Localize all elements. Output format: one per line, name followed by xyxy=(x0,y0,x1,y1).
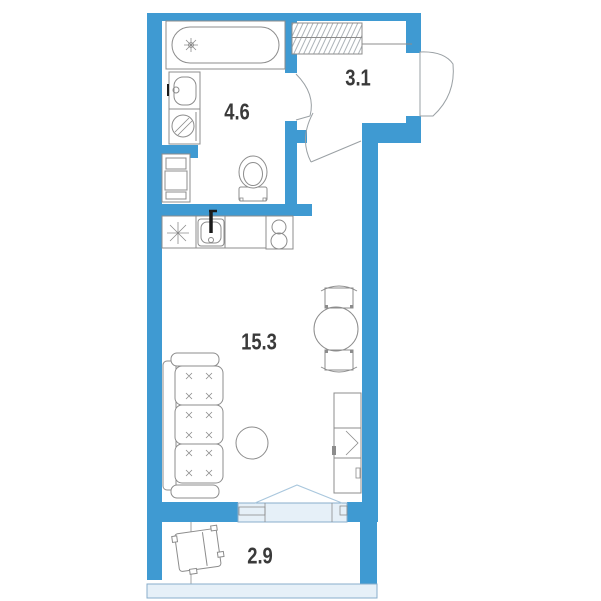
room-label-hallway: 3.1 xyxy=(345,65,371,92)
wall-bath-bottom xyxy=(147,204,312,216)
bathroom-door-swing xyxy=(296,74,311,120)
room-label-living-room: 15.3 xyxy=(241,329,277,356)
wall-left xyxy=(147,13,162,580)
kitchen xyxy=(162,211,293,249)
pouf xyxy=(236,427,268,459)
fridge-spot-symbol xyxy=(167,222,189,244)
wall-bath-right-lower xyxy=(285,121,297,216)
wall-top xyxy=(147,13,421,21)
balcony-glazing xyxy=(147,584,377,598)
living-room-furniture xyxy=(163,286,361,498)
balcony-door-open-lines xyxy=(255,485,342,503)
balcony-armchair xyxy=(171,525,226,576)
wall-bottom-left xyxy=(147,502,238,522)
entrance-door-swing xyxy=(420,52,453,116)
bathroom-sink xyxy=(168,72,200,109)
wall-balcony-right xyxy=(360,522,377,584)
balcony-door xyxy=(238,485,347,522)
stove xyxy=(266,216,293,249)
bathtub xyxy=(166,21,285,69)
round-table xyxy=(314,307,358,351)
bathtub-drain xyxy=(184,38,198,52)
wall-bottom-right-chunk xyxy=(347,502,378,522)
bathroom-cabinet xyxy=(162,154,190,202)
room-label-balcony: 2.9 xyxy=(247,543,273,570)
sofa xyxy=(163,353,223,498)
toilet xyxy=(239,156,267,201)
wall-living-right xyxy=(362,123,378,505)
wardrobe xyxy=(332,393,361,493)
floor-plan-svg xyxy=(0,0,601,601)
chair-bottom xyxy=(321,350,357,372)
wall-right-top xyxy=(406,13,421,53)
chair-top xyxy=(321,286,357,308)
washing-machine xyxy=(169,109,200,144)
entry-closet xyxy=(292,23,362,54)
floor-plan: 3.1 4.6 15.3 2.9 xyxy=(0,0,601,601)
living-room-door-swing xyxy=(305,113,361,162)
dining-table-and-chairs xyxy=(314,286,358,372)
room-label-bathroom: 4.6 xyxy=(224,99,250,126)
